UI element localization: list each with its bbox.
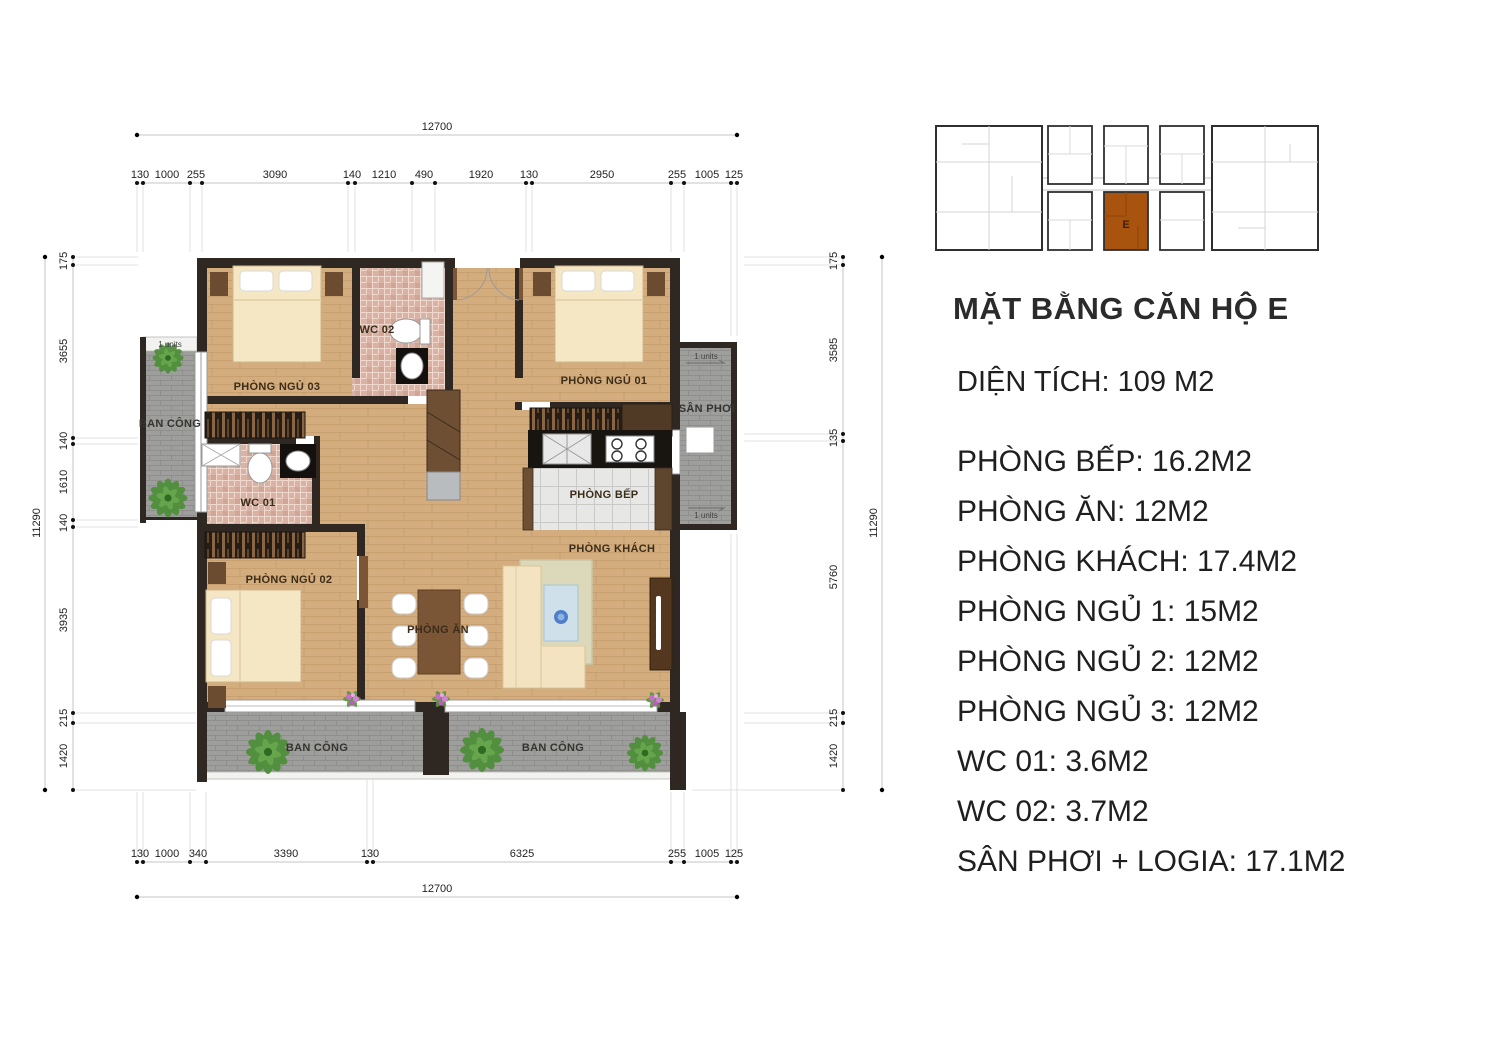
svg-text:1920: 1920 (469, 169, 493, 181)
svg-text:255: 255 (668, 169, 686, 181)
room-area-item: SÂN PHƠI + LOGIA: 17.1M2 (957, 837, 1437, 887)
svg-text:140: 140 (343, 169, 361, 181)
dim-right: 175 3585 135 5760 215 1420 11290 (828, 252, 884, 792)
svg-text:3655: 3655 (58, 339, 70, 363)
dim-top-overall: 12700 (422, 121, 453, 133)
svg-text:130: 130 (520, 169, 538, 181)
label-units-left: 1 units (158, 340, 182, 349)
page: PHÒNG NGỦ 03 WC 02 PHÒNG NGỦ 01 SÂN PHƠI… (0, 0, 1500, 1061)
svg-text:125: 125 (725, 169, 743, 181)
hall-closet (427, 390, 460, 472)
keyplan: E (936, 126, 1318, 250)
svg-text:140: 140 (58, 432, 70, 450)
keyplan-unit-label: E (1122, 219, 1129, 231)
svg-text:6325: 6325 (510, 848, 534, 860)
svg-text:135: 135 (828, 429, 840, 447)
svg-text:1000: 1000 (155, 169, 179, 181)
label-bedroom2: PHÒNG NGỦ 02 (246, 573, 333, 586)
room-area-item: PHÒNG ĂN: 12M2 (957, 487, 1437, 537)
svg-text:490: 490 (415, 169, 433, 181)
dim-left-overall: 11290 (31, 508, 43, 538)
label-bedroom1: PHÒNG NGỦ 01 (561, 374, 648, 387)
label-wc01: WC 01 (240, 497, 275, 509)
hall-appliance (427, 472, 460, 500)
room-area-list: PHÒNG BẾP: 16.2M2 PHÒNG ĂN: 12M2 PHÒNG K… (957, 437, 1437, 887)
label-san-phoi: SÂN PHƠI (679, 402, 735, 415)
page-title: MẶT BẰNG CĂN HỘ E (953, 291, 1289, 327)
label-balcony-bl: BAN CÔNG (286, 741, 348, 754)
label-units-top: 1 units (694, 352, 718, 361)
svg-text:1005: 1005 (695, 169, 719, 181)
room-area-item: PHÒNG BẾP: 16.2M2 (957, 437, 1437, 487)
label-wc02: WC 02 (359, 324, 394, 336)
room-area-item: PHÒNG NGỦ 2: 12M2 (957, 637, 1437, 687)
svg-text:1210: 1210 (372, 169, 396, 181)
wardrobe-bedroom3 (205, 412, 305, 438)
svg-text:140: 140 (58, 514, 70, 532)
label-kitchen: PHÒNG BẾP (570, 488, 639, 501)
room-area-item: WC 02: 3.7M2 (957, 787, 1437, 837)
room-area-item: PHÒNG NGỦ 3: 12M2 (957, 687, 1437, 737)
svg-text:130: 130 (361, 848, 379, 860)
wardrobe-bedroom2 (205, 532, 305, 558)
dim-left: 11290 175 3655 140 1610 140 3935 215 142… (31, 252, 75, 792)
svg-text:175: 175 (58, 252, 70, 270)
room-area-item: PHÒNG NGỦ 1: 15M2 (957, 587, 1437, 637)
label-balcony-left: BAN CÔNG (139, 417, 201, 430)
svg-text:125: 125 (725, 848, 743, 860)
room-area-item: WC 01: 3.6M2 (957, 737, 1437, 787)
svg-text:215: 215 (58, 709, 70, 727)
room-area-item: PHÒNG KHÁCH: 17.4M2 (957, 537, 1437, 587)
svg-text:1000: 1000 (155, 848, 179, 860)
label-living: PHÒNG KHÁCH (569, 542, 655, 555)
svg-text:3585: 3585 (828, 338, 840, 362)
svg-text:1610: 1610 (58, 470, 70, 494)
label-units-bottom: 1 units (694, 511, 718, 520)
svg-text:3390: 3390 (274, 848, 298, 860)
label-balcony-br: BAN CÔNG (522, 741, 584, 754)
svg-text:3935: 3935 (58, 608, 70, 632)
svg-text:130: 130 (131, 848, 149, 860)
svg-text:3090: 3090 (263, 169, 287, 181)
washer (686, 427, 714, 453)
svg-text:130: 130 (131, 169, 149, 181)
total-area-text: DIỆN TÍCH: 109 M2 (957, 366, 1214, 399)
dim-bottom-overall: 12700 (422, 883, 453, 895)
svg-text:1420: 1420 (828, 744, 840, 768)
svg-text:2950: 2950 (590, 169, 614, 181)
label-bedroom3: PHÒNG NGỦ 03 (234, 380, 321, 393)
svg-text:175: 175 (828, 252, 840, 270)
svg-text:340: 340 (189, 848, 207, 860)
svg-text:1005: 1005 (695, 848, 719, 860)
svg-text:255: 255 (668, 848, 686, 860)
dim-bottom: 130 1000 340 3390 130 6325 255 1005 125 … (131, 848, 743, 899)
svg-text:1420: 1420 (58, 744, 70, 768)
dim-right-overall: 11290 (868, 508, 880, 538)
svg-text:5760: 5760 (828, 565, 840, 589)
label-dining: PHÒNG ĂN (407, 623, 469, 636)
svg-text:255: 255 (187, 169, 205, 181)
dim-top: 12700 130 1000 255 3090 140 1210 490 192… (131, 121, 743, 185)
svg-text:215: 215 (828, 709, 840, 727)
